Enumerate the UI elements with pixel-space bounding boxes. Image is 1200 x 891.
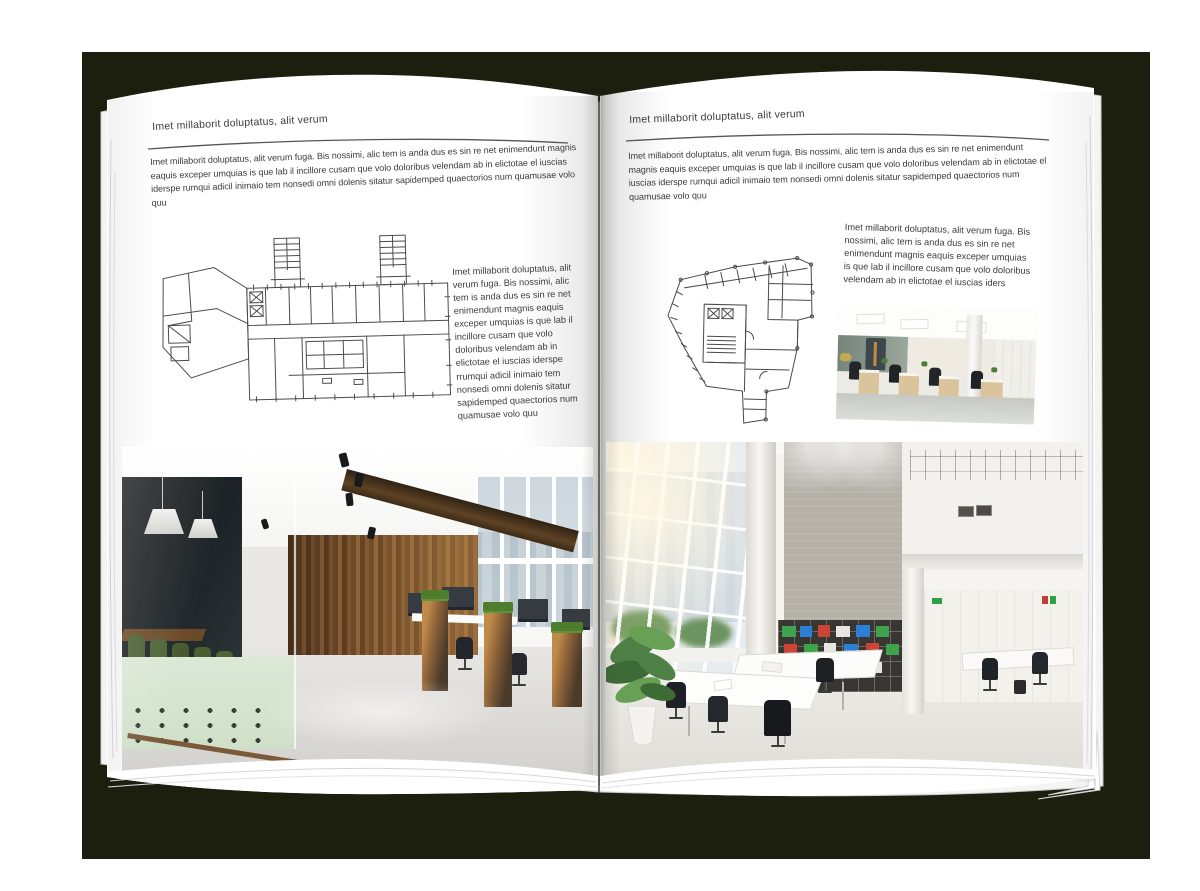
- glass-railing: [910, 450, 1083, 480]
- safety-sign-green: [1050, 596, 1056, 604]
- left-page-caption: Imet millaborit doluptatus, alit verum f…: [452, 261, 579, 422]
- black-chair: [510, 653, 527, 675]
- binder-group: [818, 625, 830, 637]
- fascia-vent: [958, 506, 974, 517]
- office-photo-left: [122, 447, 593, 777]
- desk-leg: [688, 706, 690, 736]
- floor-sheen: [262, 677, 502, 747]
- track-spotlight: [345, 493, 353, 507]
- office-photo-atrium: [606, 442, 1083, 780]
- desk-leg: [842, 682, 844, 710]
- waste-bin: [1014, 680, 1026, 694]
- binder-group: [836, 626, 850, 637]
- desk-monitor: [518, 599, 548, 622]
- black-chair: [708, 696, 728, 722]
- white-desk: [962, 647, 1075, 671]
- wood-planter: [552, 631, 582, 707]
- black-chair: [816, 658, 834, 682]
- mezzanine-underside: [902, 554, 1083, 570]
- plant-pot: [991, 367, 997, 372]
- black-chair: [1032, 652, 1048, 674]
- black-chair: [456, 637, 473, 659]
- black-chair: [982, 658, 998, 680]
- ceiling-light-panel: [857, 314, 885, 325]
- right-page-intro: Imet millaborit doluptatus, alit verum f…: [628, 140, 1053, 204]
- binder-group: [800, 626, 812, 637]
- right-page-caption: Imet millaborit doluptatus, alit verum f…: [843, 221, 1033, 291]
- ceiling-light-panel: [900, 319, 928, 329]
- mezzanine: [902, 442, 1083, 570]
- safety-sign-red: [1042, 596, 1048, 604]
- white-column: [902, 568, 924, 714]
- fascia-vent: [976, 505, 992, 516]
- papers: [762, 661, 783, 673]
- concrete-wall: [784, 442, 902, 647]
- black-chair: [764, 700, 791, 736]
- floor-plan-right: [644, 219, 840, 431]
- carpet-floor: [836, 393, 1035, 425]
- office-photo-right-small: [836, 305, 1037, 424]
- magazine-spread-mockup: Imet millaborit doluptatus, alit verum I…: [0, 0, 1200, 891]
- floor-plan-left: [154, 220, 453, 420]
- exit-sign: [932, 598, 942, 604]
- binder-group: [856, 625, 870, 637]
- spine-gutter-shadow: [582, 94, 620, 786]
- plant-pot: [881, 358, 887, 363]
- desk-cluster-left: [666, 652, 896, 767]
- binder-group: [876, 626, 889, 637]
- binder-group: [782, 626, 796, 637]
- desk-cluster-right: [962, 640, 1082, 720]
- plant-pot: [921, 361, 927, 366]
